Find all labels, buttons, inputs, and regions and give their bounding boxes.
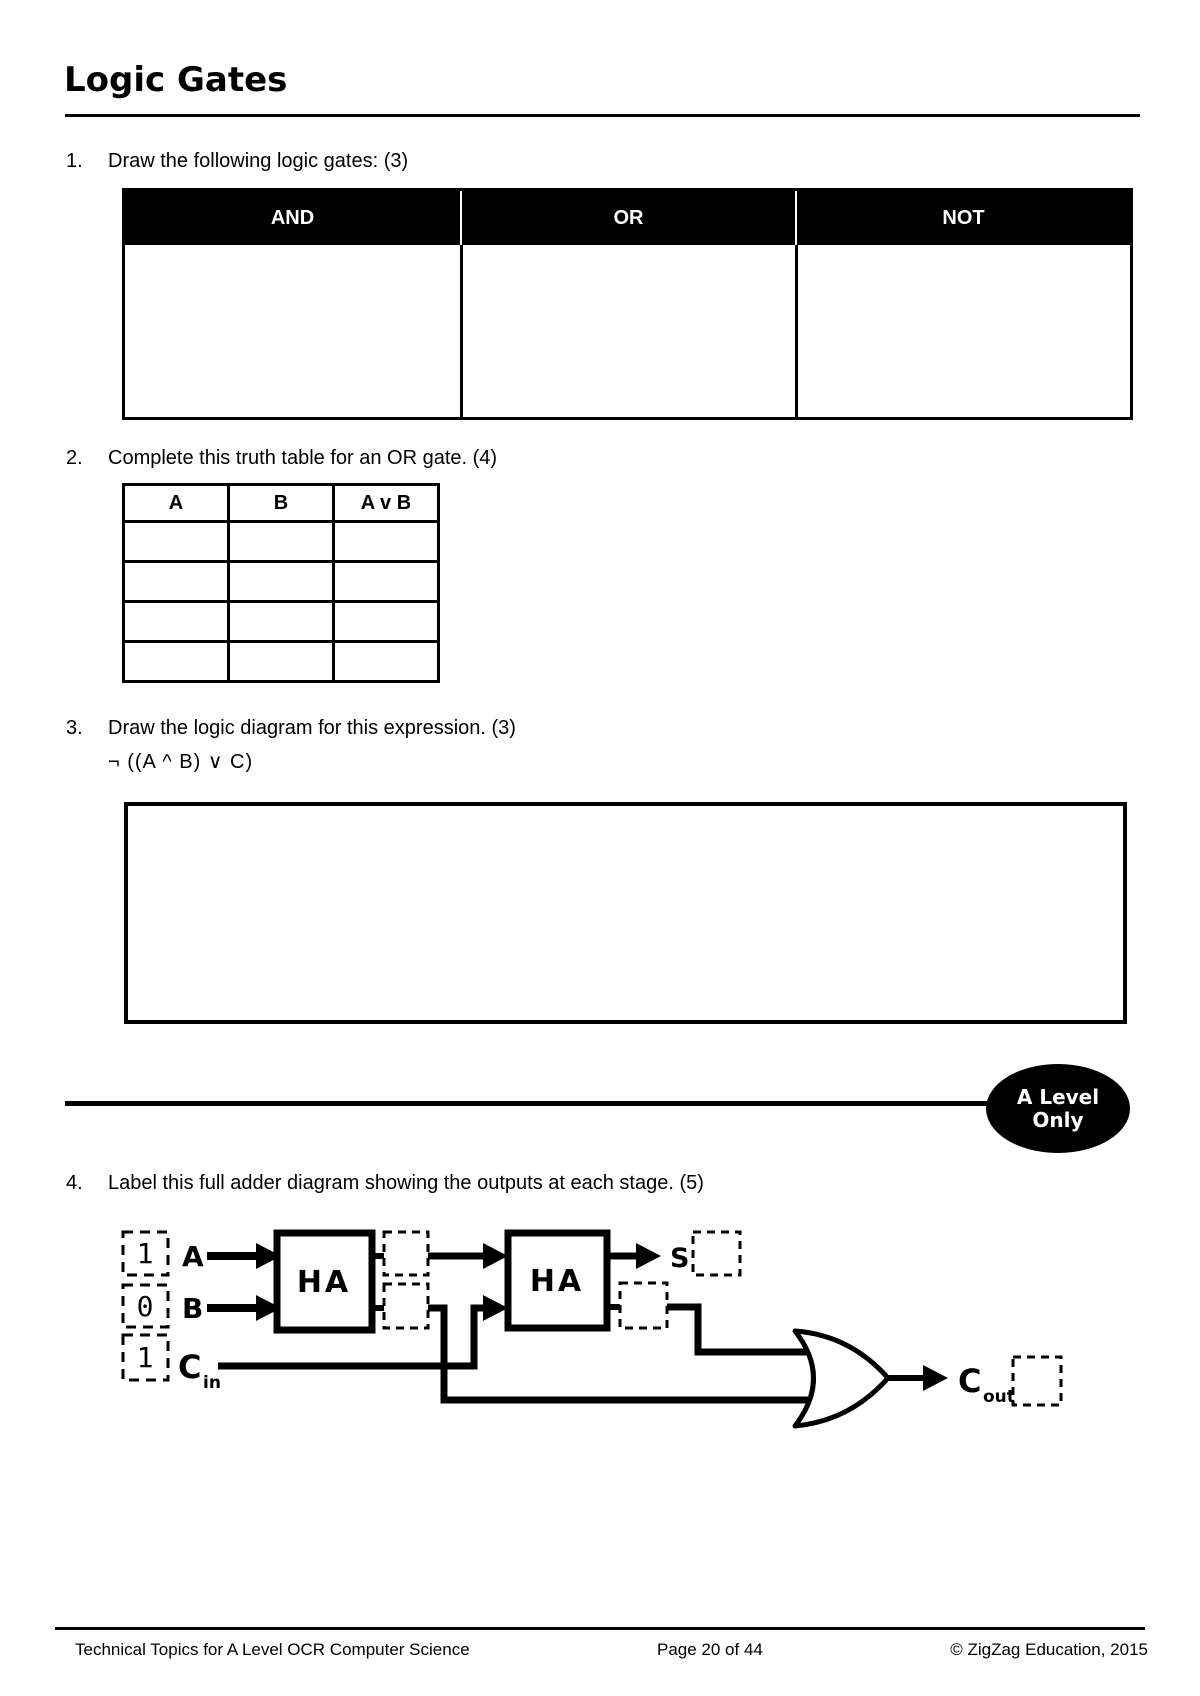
footer-page-number: Page 20 of 44 xyxy=(657,1640,763,1660)
arrowhead-sum xyxy=(636,1243,661,1269)
gates-header-or: OR xyxy=(460,191,795,245)
truth-table-cell xyxy=(229,522,334,562)
truth-table: A B A v B xyxy=(122,483,440,683)
q1-text: Draw the following logic gates: (3) xyxy=(108,150,408,173)
input-b-value: 0 xyxy=(137,1290,154,1323)
truth-table-header-row: A B A v B xyxy=(124,485,439,522)
footer-rule xyxy=(55,1627,1145,1630)
worksheet-page: Logic Gates 1. Draw the following logic … xyxy=(0,0,1200,1696)
gates-header-and: AND xyxy=(125,191,460,245)
gate-drawing-cell xyxy=(795,245,1130,417)
truth-table-cell xyxy=(334,562,439,602)
input-a-value: 1 xyxy=(137,1237,154,1270)
gates-header-not: NOT xyxy=(795,191,1130,245)
gate-drawing-cell xyxy=(125,245,460,417)
truth-table-row xyxy=(124,562,439,602)
truth-table-row xyxy=(124,522,439,562)
gate-drawing-cell xyxy=(460,245,795,417)
q3-number: 3. xyxy=(66,717,100,740)
sum-output-label: S xyxy=(670,1243,689,1274)
footer-left: Technical Topics for A Level OCR Compute… xyxy=(75,1640,470,1660)
q1-number: 1. xyxy=(66,150,100,173)
truth-table-cell xyxy=(124,602,229,642)
q3-text: Draw the logic diagram for this expressi… xyxy=(108,717,516,740)
truth-table-row xyxy=(124,602,439,642)
footer: Technical Topics for A Level OCR Compute… xyxy=(75,1640,1148,1660)
cout-answer-box xyxy=(1013,1357,1061,1405)
section-divider-line xyxy=(65,1101,1010,1106)
cout-label: C xyxy=(958,1362,981,1400)
title-underline xyxy=(65,114,1140,117)
gates-table-body xyxy=(125,245,1130,417)
truth-header-a: A xyxy=(124,485,229,522)
truth-table-cell xyxy=(124,522,229,562)
input-a-label: A xyxy=(182,1240,204,1273)
truth-table-cell xyxy=(334,602,439,642)
q4-text: Label this full adder diagram showing th… xyxy=(108,1172,704,1195)
q4-number: 4. xyxy=(66,1172,100,1195)
q2-number: 2. xyxy=(66,447,100,470)
half-adder-2-label: HA xyxy=(530,1264,584,1299)
input-cin-label: C xyxy=(178,1348,201,1386)
footer-copyright: © ZigZag Education, 2015 xyxy=(950,1640,1148,1660)
badge-line2: Only xyxy=(1032,1109,1083,1132)
sum-answer-box xyxy=(693,1232,740,1275)
wire-ha2-carry-to-or xyxy=(667,1307,815,1352)
truth-table-cell xyxy=(229,562,334,602)
or-gate xyxy=(795,1331,888,1426)
truth-table-cell xyxy=(334,522,439,562)
truth-table-cell xyxy=(124,642,229,682)
badge-line1: A Level xyxy=(1017,1086,1099,1109)
truth-header-avb: A v B xyxy=(334,485,439,522)
truth-table-cell xyxy=(334,642,439,682)
arrowhead-cout xyxy=(923,1365,948,1391)
half-adder-1-label: HA xyxy=(297,1265,351,1300)
input-cin-value: 1 xyxy=(137,1341,154,1374)
input-cin-subscript: in xyxy=(203,1373,221,1393)
arrowhead-cin xyxy=(483,1295,508,1321)
ha2-carry-answer-box xyxy=(620,1283,667,1328)
q3-expression: ¬ ((A ^ B) ∨ C) xyxy=(108,749,253,774)
truth-table-cell xyxy=(229,642,334,682)
truth-header-b: B xyxy=(229,485,334,522)
q3-answer-box xyxy=(124,802,1127,1024)
ha1-sum-answer-box xyxy=(384,1232,428,1275)
q2-text: Complete this truth table for an OR gate… xyxy=(108,447,497,470)
truth-table-row xyxy=(124,642,439,682)
gates-table-header: AND OR NOT xyxy=(125,191,1130,245)
cout-subscript: out xyxy=(983,1387,1015,1407)
ha1-carry-answer-box xyxy=(384,1284,428,1328)
truth-table-cell xyxy=(229,602,334,642)
page-title: Logic Gates xyxy=(64,60,287,100)
a-level-only-badge: A Level Only xyxy=(986,1064,1130,1153)
truth-table-cell xyxy=(124,562,229,602)
input-b-label: B xyxy=(182,1292,203,1325)
full-adder-diagram: 1 0 1 A B C in HA HA S xyxy=(0,1220,1200,1500)
arrowhead-ha1-sum xyxy=(483,1243,508,1269)
gates-table: AND OR NOT xyxy=(122,188,1133,420)
